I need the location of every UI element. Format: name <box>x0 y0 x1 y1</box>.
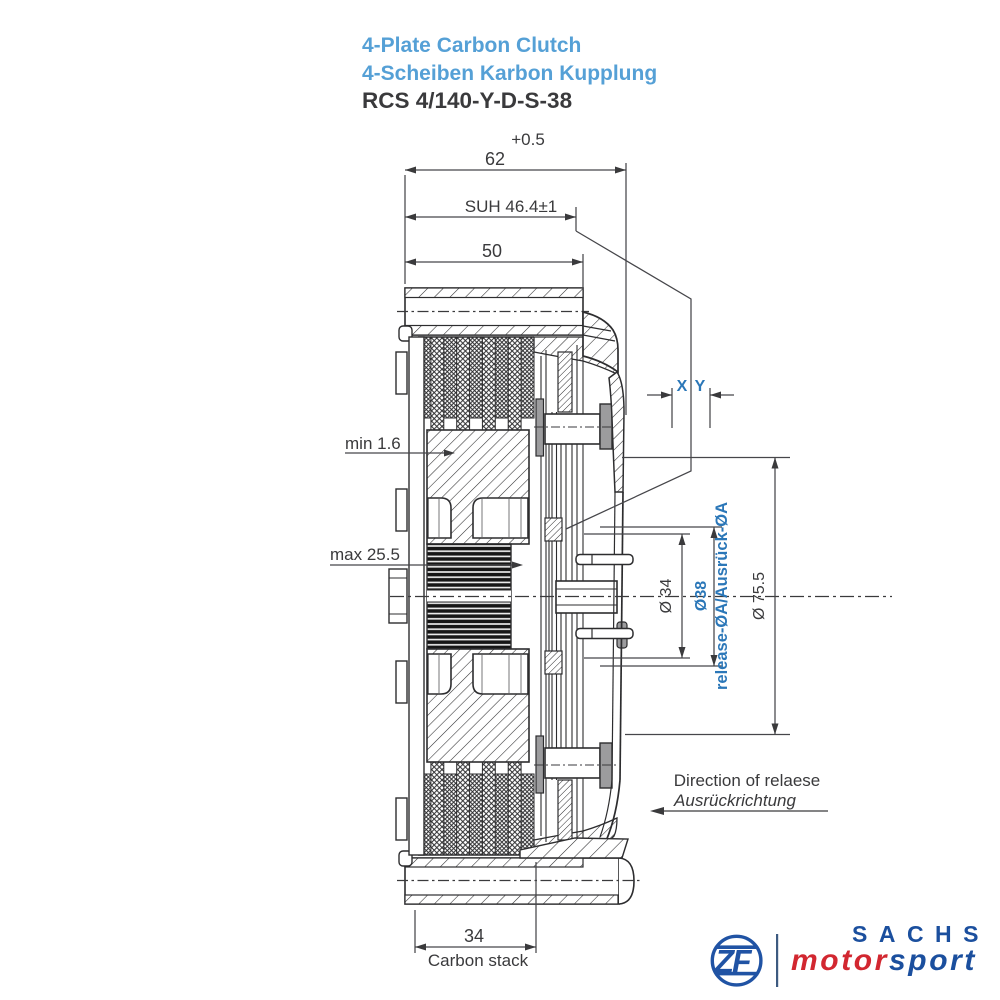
svg-text:ZF: ZF <box>714 944 754 980</box>
svg-text:4-Scheiben Karbon Kupplung: 4-Scheiben Karbon Kupplung <box>362 62 657 85</box>
svg-text:Ausrückrichtung: Ausrückrichtung <box>673 791 796 810</box>
svg-text:Direction of relaese: Direction of relaese <box>674 771 820 790</box>
svg-text:Carbon stack: Carbon stack <box>428 951 529 970</box>
svg-text:X: X <box>677 378 688 395</box>
svg-text:62: 62 <box>485 149 505 169</box>
svg-text:release-ØA/Ausrück-ØA: release-ØA/Ausrück-ØA <box>713 502 731 690</box>
svg-text:SUH 46.4±1: SUH 46.4±1 <box>465 197 558 216</box>
svg-text:34: 34 <box>464 926 484 946</box>
svg-text:RCS 4/140-Y-D-S-38: RCS 4/140-Y-D-S-38 <box>362 88 572 113</box>
svg-text:+0.5: +0.5 <box>511 130 545 149</box>
svg-text:min 1.6: min 1.6 <box>345 434 401 453</box>
svg-text:4-Plate Carbon Clutch: 4-Plate Carbon Clutch <box>362 34 581 57</box>
svg-text:50: 50 <box>482 241 502 261</box>
svg-text:max 25.5: max 25.5 <box>330 545 400 564</box>
svg-text:Ø 75.5: Ø 75.5 <box>751 572 768 620</box>
svg-text:motorsport: motorsport <box>791 944 977 977</box>
svg-text:Ø38: Ø38 <box>693 581 710 611</box>
svg-text:Y: Y <box>695 378 706 395</box>
svg-text:Ø 34: Ø 34 <box>658 579 675 614</box>
